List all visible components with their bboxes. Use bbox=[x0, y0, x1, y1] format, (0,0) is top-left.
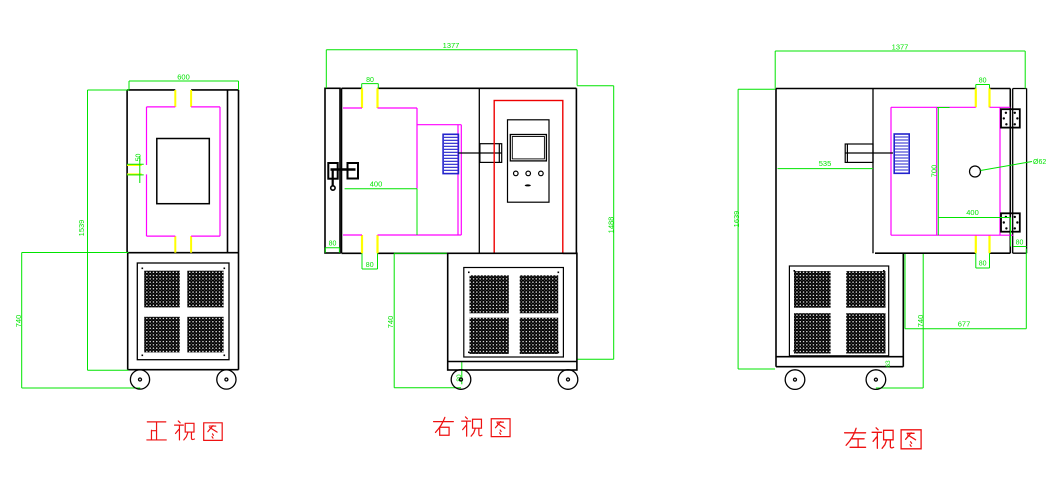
svg-text:740: 740 bbox=[916, 315, 925, 328]
svg-text:1539: 1539 bbox=[77, 220, 86, 237]
svg-text:1377: 1377 bbox=[443, 41, 460, 50]
svg-text:63: 63 bbox=[885, 360, 892, 368]
svg-text:1488: 1488 bbox=[607, 217, 616, 234]
svg-text:80: 80 bbox=[979, 78, 987, 85]
svg-text:400: 400 bbox=[370, 180, 383, 189]
svg-text:677: 677 bbox=[958, 320, 971, 329]
svg-text:535: 535 bbox=[819, 159, 832, 168]
svg-text:740: 740 bbox=[14, 315, 23, 328]
svg-text:400: 400 bbox=[966, 208, 979, 217]
svg-text:1377: 1377 bbox=[892, 43, 909, 52]
svg-text:80: 80 bbox=[979, 261, 987, 268]
svg-text:600: 600 bbox=[177, 73, 190, 82]
svg-text:80: 80 bbox=[366, 77, 374, 84]
svg-text:80: 80 bbox=[366, 262, 374, 269]
svg-text:700: 700 bbox=[930, 165, 939, 178]
svg-text:80: 80 bbox=[329, 241, 337, 248]
svg-text:Ø62: Ø62 bbox=[1033, 159, 1046, 166]
svg-text:740: 740 bbox=[386, 316, 395, 329]
svg-text:1639: 1639 bbox=[732, 211, 741, 228]
svg-text:80: 80 bbox=[1016, 240, 1024, 247]
svg-text:50: 50 bbox=[136, 154, 143, 162]
